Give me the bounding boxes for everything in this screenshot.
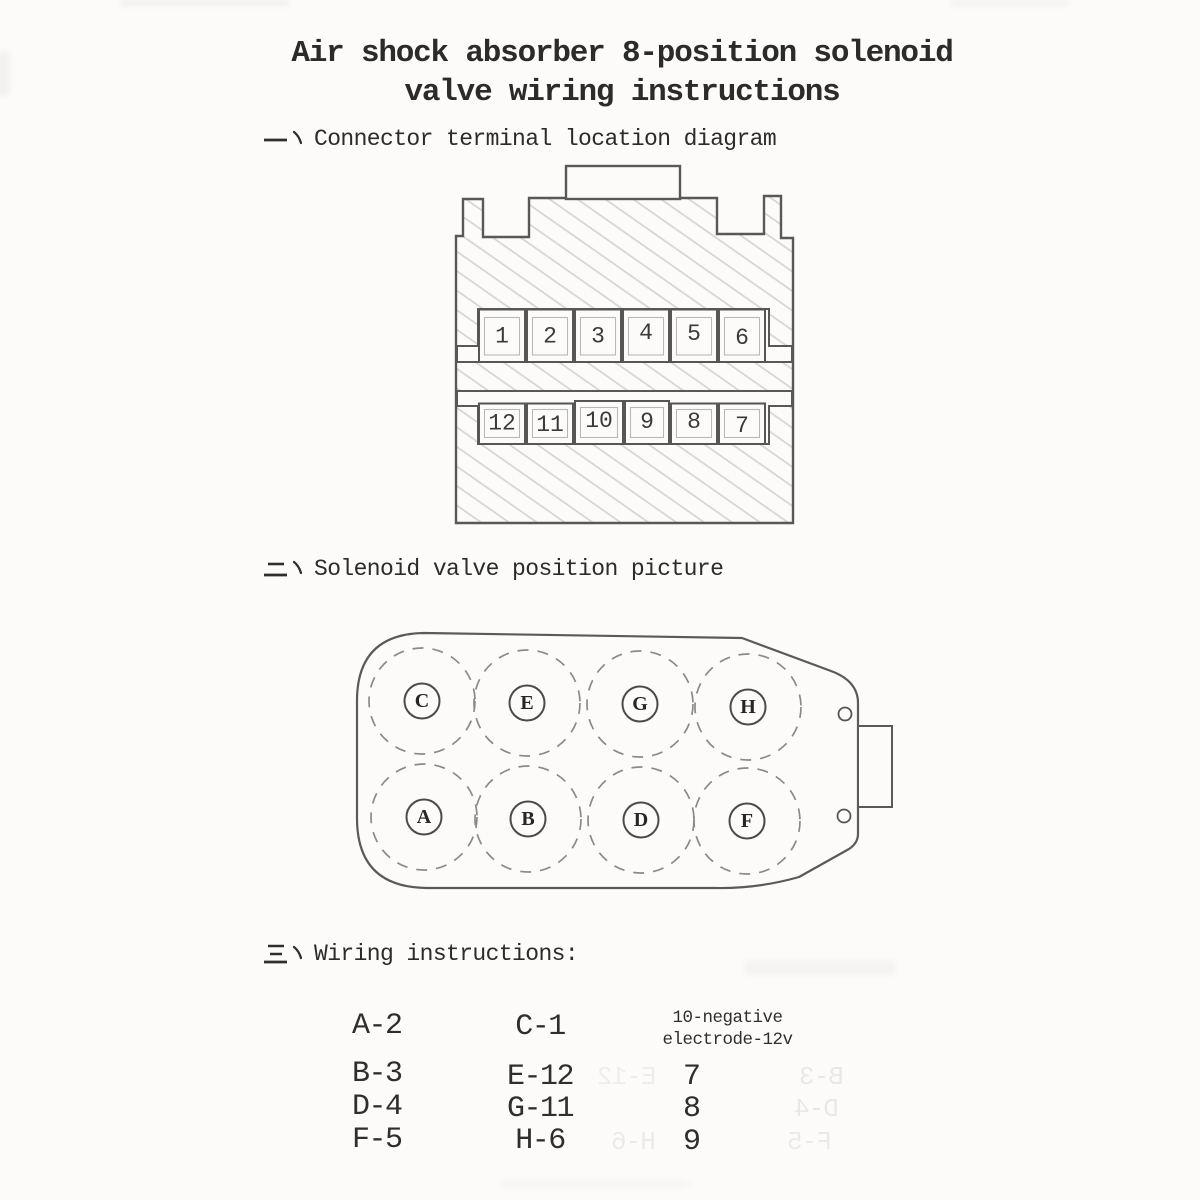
section-heading-two: Solenoid valve position picture xyxy=(261,554,723,584)
terminal-cell-12: 12 xyxy=(479,404,525,445)
ghost-text: F-5 xyxy=(788,1127,832,1157)
scan-artifact xyxy=(500,1180,690,1188)
scan-artifact xyxy=(120,0,290,6)
scan-artifact xyxy=(950,0,1070,6)
terminal-cell-8: 8 xyxy=(671,404,717,445)
terminal-number: 8 xyxy=(687,409,701,435)
wiring-pair: B-3 xyxy=(352,1057,402,1091)
wiring-terminal: 7 xyxy=(683,1060,700,1094)
section-heading-three: Wiring instructions: xyxy=(261,939,578,969)
terminal-row-top: 1 2 3 4 5 xyxy=(479,310,765,363)
terminal-row-bottom: 12 11 10 9 8 xyxy=(479,401,765,444)
ghost-text: E-12 xyxy=(598,1062,656,1092)
ghost-text: H-6 xyxy=(612,1127,656,1157)
mounting-hole-top xyxy=(839,708,852,721)
terminal-number: 3 xyxy=(591,324,605,350)
wiring-pair: E-12 xyxy=(470,1060,610,1094)
terminal-number: 7 xyxy=(735,413,749,439)
wiring-pair: F-5 xyxy=(352,1123,402,1157)
document-page: Air shock absorber 8-position solenoid v… xyxy=(0,0,1200,1200)
terminal-cell-1: 1 xyxy=(479,310,525,363)
connector-diagram: 1 2 3 4 5 xyxy=(438,158,812,530)
section-heading-one: Connector terminal location diagram xyxy=(261,124,776,154)
terminal-cell-11: 11 xyxy=(527,404,573,445)
terminal-number: 6 xyxy=(735,325,749,351)
terminal-number: 9 xyxy=(640,409,654,435)
chinese-numeral-three-icon xyxy=(261,940,305,968)
terminal-cell-5: 5 xyxy=(671,310,717,363)
terminal-number: 1 xyxy=(495,324,509,350)
terminal-cell-6: 6 xyxy=(719,310,765,363)
solenoid-letter: G xyxy=(632,693,648,715)
solenoid-letter: F xyxy=(741,810,753,832)
valve-body xyxy=(357,633,858,888)
terminal-number: 2 xyxy=(543,324,557,350)
terminal-cell-4: 4 xyxy=(623,310,669,363)
wiring-terminal: 9 xyxy=(683,1125,700,1159)
ghost-text: B-3 xyxy=(800,1062,844,1092)
ghost-text: D-4 xyxy=(795,1094,839,1124)
solenoid-letter: E xyxy=(520,692,533,714)
terminal-cell-3: 3 xyxy=(575,310,621,363)
terminal-number: 10 xyxy=(585,408,613,434)
wiring-negative-line1: 10-negative xyxy=(645,1008,810,1028)
section-heading-two-label: Solenoid valve position picture xyxy=(314,556,723,582)
valve-diagram: C E G H A B D xyxy=(338,610,912,906)
wiring-pair: G-11 xyxy=(470,1092,610,1126)
section-heading-one-label: Connector terminal location diagram xyxy=(314,126,776,152)
chinese-numeral-one-icon xyxy=(261,125,305,153)
scan-artifact xyxy=(745,960,895,975)
solenoid-letter: D xyxy=(634,809,648,831)
terminal-number: 11 xyxy=(536,412,564,438)
wiring-pair: A-2 xyxy=(352,1009,402,1043)
mounting-hole-bottom xyxy=(838,810,851,823)
wiring-terminal: 8 xyxy=(683,1092,700,1126)
solenoid-letter: C xyxy=(415,690,429,712)
valve-side-tab xyxy=(858,726,892,807)
connector-top-tab xyxy=(566,166,680,199)
terminal-cell-9: 9 xyxy=(625,401,669,444)
terminal-number: 12 xyxy=(488,411,516,437)
terminal-number: 5 xyxy=(687,321,701,347)
page-title: Air shock absorber 8-position solenoid v… xyxy=(22,34,1200,112)
terminal-cell-10: 10 xyxy=(575,401,623,444)
terminal-number: 4 xyxy=(639,320,653,346)
wiring-pair: D-4 xyxy=(352,1090,402,1124)
solenoid-letter: A xyxy=(417,806,432,828)
wiring-negative-line2: electrode-12v xyxy=(645,1030,810,1050)
terminal-cell-2: 2 xyxy=(527,310,573,363)
page-title-line1: Air shock absorber 8-position solenoid xyxy=(22,34,1200,73)
scan-artifact xyxy=(0,52,10,96)
section-heading-three-label: Wiring instructions: xyxy=(314,941,578,967)
page-title-line2: valve wiring instructions xyxy=(22,73,1200,112)
terminal-cell-7: 7 xyxy=(719,404,765,445)
wiring-pair: C-1 xyxy=(470,1010,610,1044)
wiring-pair: H-6 xyxy=(470,1124,610,1158)
chinese-numeral-two-icon xyxy=(261,555,305,583)
solenoid-letter: H xyxy=(740,696,756,718)
solenoid-letter: B xyxy=(521,808,534,830)
